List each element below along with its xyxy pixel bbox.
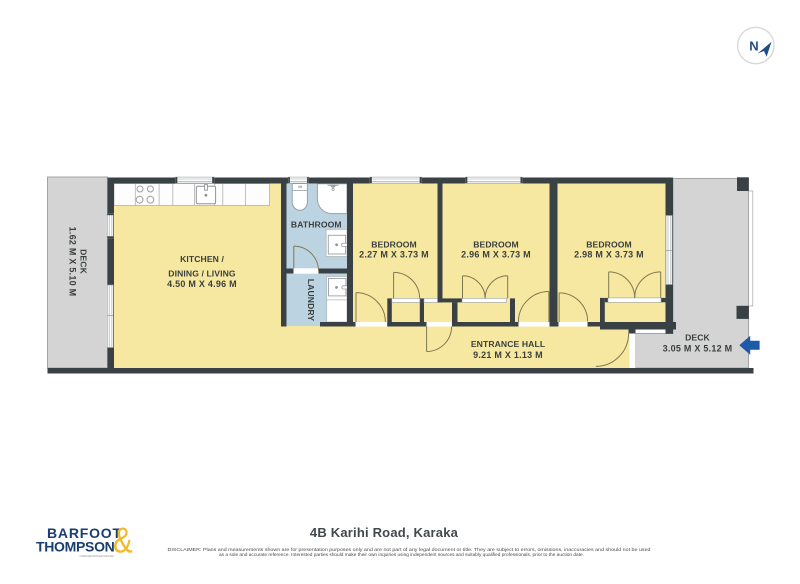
- svg-text:as a sole and accurate referen: as a sole and accurate reference. Intere…: [219, 552, 584, 558]
- svg-text:DISCLAIMER: Plans and measurem: DISCLAIMER: Plans and measurements shown…: [168, 547, 651, 553]
- svg-text:4B Karihi Road, Karaka: 4B Karihi Road, Karaka: [310, 525, 459, 540]
- svg-text:&: &: [113, 520, 133, 560]
- svg-text:BEDROOM: BEDROOM: [586, 239, 632, 249]
- svg-text:2.96 M X 3.73 M: 2.96 M X 3.73 M: [461, 249, 531, 259]
- svg-text:3.05 M X 5.12 M: 3.05 M X 5.12 M: [663, 344, 733, 354]
- svg-text:DINING / LIVING: DINING / LIVING: [168, 269, 236, 279]
- svg-text:LAUNDRY: LAUNDRY: [306, 279, 316, 322]
- svg-text:THOMPSON: THOMPSON: [36, 538, 115, 554]
- svg-text:9.21 M X 1.13 M: 9.21 M X 1.13 M: [473, 350, 543, 360]
- svg-text:DECK: DECK: [685, 332, 710, 342]
- svg-text:BATHROOM: BATHROOM: [291, 220, 342, 230]
- svg-text:2.98 M X 3.73 M: 2.98 M X 3.73 M: [574, 249, 644, 259]
- svg-text:LICENSED REAL ESTATE AGENTS RE: LICENSED REAL ESTATE AGENTS REAA 2008: [80, 554, 114, 558]
- svg-text:ENTRANCE HALL: ENTRANCE HALL: [471, 339, 545, 349]
- svg-text:DECK: DECK: [79, 249, 89, 274]
- svg-text:BEDROOM: BEDROOM: [371, 239, 417, 249]
- svg-text:2.27 M X 3.73 M: 2.27 M X 3.73 M: [359, 249, 429, 259]
- svg-text:4.50 M X 4.96 M: 4.50 M X 4.96 M: [167, 279, 237, 289]
- svg-text:KITCHEN /: KITCHEN /: [180, 254, 224, 264]
- svg-text:1.62 M X 5.10 M: 1.62 M X 5.10 M: [68, 227, 78, 297]
- svg-text:BEDROOM: BEDROOM: [473, 239, 519, 249]
- svg-text:N: N: [749, 39, 758, 54]
